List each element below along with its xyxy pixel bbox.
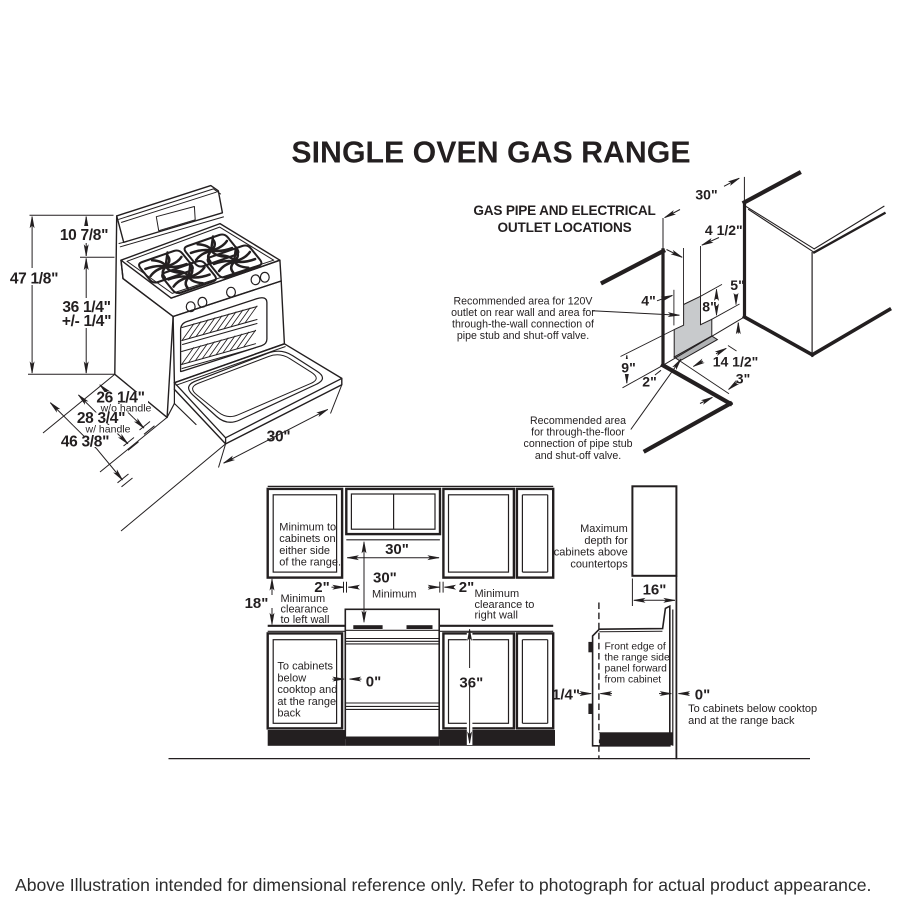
svg-text:Front edge of: Front edge of [605,642,666,653]
svg-text:cooktop and: cooktop and [277,684,337,696]
svg-text:countertops: countertops [570,558,628,570]
svg-text:30": 30" [373,570,397,587]
svg-text:4": 4" [641,293,655,309]
svg-text:at the range: at the range [277,696,336,708]
svg-text:30": 30" [267,429,291,446]
svg-text:18": 18" [245,595,269,612]
svg-text:connection of pipe stub: connection of pipe stub [524,438,633,450]
svg-text:To cabinets below cooktop: To cabinets below cooktop [688,703,817,715]
svg-text:for through-the-floor: for through-the-floor [531,427,625,439]
svg-text:outlet on rear wall and area f: outlet on rear wall and area for [451,307,595,319]
svg-text:of the range.: of the range. [279,557,341,569]
svg-text:10 7/8": 10 7/8" [60,227,108,244]
svg-text:and shut-off valve.: and shut-off valve. [535,450,621,462]
svg-text:and at the range back: and at the range back [688,715,795,727]
svg-text:47 1/8": 47 1/8" [10,271,58,288]
svg-text:to left wall: to left wall [281,614,330,626]
svg-text:SINGLE OVEN GAS RANGE: SINGLE OVEN GAS RANGE [291,135,690,169]
svg-text:0": 0" [366,674,381,691]
svg-text:+/- 1/4": +/- 1/4" [62,313,111,330]
svg-text:either side: either side [279,545,330,557]
svg-text:Above Illustration intended fo: Above Illustration intended for dimensio… [15,875,871,895]
svg-text:8": 8" [702,299,716,315]
svg-text:36": 36" [459,675,483,692]
svg-text:pipe stub and shut-off valve.: pipe stub and shut-off valve. [457,330,589,342]
svg-text:right wall: right wall [475,610,518,622]
svg-text:cabinets above: cabinets above [554,547,628,559]
svg-text:30": 30" [695,187,717,203]
svg-text:back: back [277,708,301,720]
svg-text:depth for: depth for [584,535,628,547]
svg-text:30": 30" [385,541,409,558]
svg-text:16": 16" [643,582,667,599]
svg-text:14 1/2": 14 1/2" [713,354,759,370]
svg-text:the range side: the range side [605,653,671,664]
svg-text:To cabinets: To cabinets [277,661,333,673]
svg-text:from cabinet: from cabinet [605,675,662,686]
svg-text:through-the-wall connection of: through-the-wall connection of [452,319,594,331]
svg-text:OUTLET LOCATIONS: OUTLET LOCATIONS [498,220,632,235]
svg-text:Recommended area for 120V: Recommended area for 120V [454,295,594,307]
svg-text:below: below [277,672,306,684]
svg-text:46 3/8": 46 3/8" [61,434,109,451]
svg-text:Maximum: Maximum [580,523,628,535]
svg-text:Recommended area: Recommended area [530,415,626,427]
svg-text:GAS PIPE AND ELECTRICAL: GAS PIPE AND ELECTRICAL [473,203,655,218]
svg-text:0": 0" [695,687,710,704]
svg-text:cabinets on: cabinets on [279,533,335,545]
svg-text:Minimum: Minimum [372,589,417,601]
svg-text:2": 2" [642,374,656,390]
svg-text:3": 3" [736,371,750,387]
svg-text:1/4": 1/4" [552,687,580,704]
svg-text:panel forward: panel forward [605,664,668,675]
svg-text:9": 9" [621,360,635,376]
svg-text:4 1/2": 4 1/2" [705,222,743,238]
svg-text:Minimum to: Minimum to [279,521,336,533]
svg-text:2": 2" [459,579,474,596]
svg-text:5": 5" [730,277,744,293]
